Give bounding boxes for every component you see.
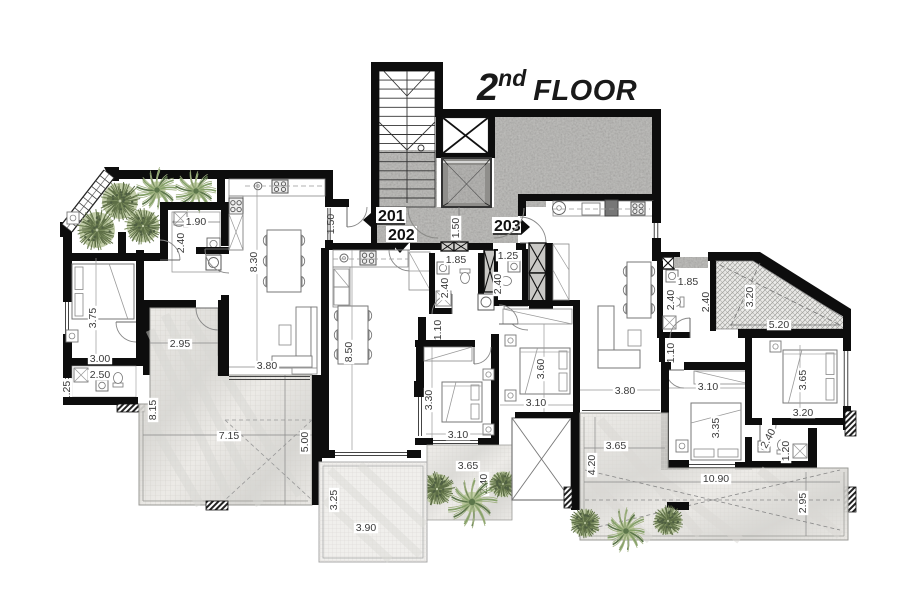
svg-text:8.15: 8.15 [147, 400, 159, 421]
svg-text:203: 203 [494, 218, 521, 235]
svg-text:1.20: 1.20 [780, 441, 792, 462]
svg-text:1.50: 1.50 [450, 218, 462, 239]
svg-text:7.15: 7.15 [219, 430, 240, 442]
svg-text:10.90: 10.90 [703, 473, 729, 485]
svg-text:201: 201 [378, 208, 405, 225]
svg-text:3.80: 3.80 [615, 385, 636, 397]
svg-text:3.20: 3.20 [793, 407, 814, 419]
svg-text:1.10: 1.10 [665, 343, 677, 364]
svg-text:2.50: 2.50 [90, 369, 111, 381]
svg-text:3.65: 3.65 [797, 370, 809, 391]
svg-text:3.65: 3.65 [458, 460, 479, 472]
svg-text:1.90: 1.90 [186, 216, 207, 228]
svg-text:8.30: 8.30 [248, 252, 260, 273]
svg-text:5.20: 5.20 [769, 319, 790, 331]
svg-text:3.35: 3.35 [710, 418, 722, 439]
svg-text:2.40: 2.40 [665, 290, 677, 311]
svg-text:2.95: 2.95 [170, 338, 191, 350]
svg-text:1.10: 1.10 [432, 320, 444, 341]
svg-text:3.30: 3.30 [423, 390, 435, 411]
svg-text:2.40: 2.40 [492, 274, 504, 295]
svg-text:5.00: 5.00 [299, 432, 311, 453]
svg-text:3.90: 3.90 [356, 522, 377, 534]
svg-text:2.95: 2.95 [797, 493, 809, 514]
svg-text:8.50: 8.50 [343, 342, 355, 363]
svg-text:1.50: 1.50 [325, 214, 337, 235]
svg-text:2.40: 2.40 [175, 233, 187, 254]
svg-text:2.40: 2.40 [439, 278, 451, 299]
svg-text:3.20: 3.20 [744, 287, 756, 308]
svg-text:3.10: 3.10 [698, 381, 719, 393]
svg-text:4.20: 4.20 [586, 455, 598, 476]
svg-text:3.25: 3.25 [328, 490, 340, 511]
svg-text:3.00: 3.00 [90, 353, 111, 365]
svg-text:3.75: 3.75 [87, 308, 99, 329]
svg-text:202: 202 [388, 227, 415, 244]
svg-text:1.85: 1.85 [678, 276, 699, 288]
svg-text:3.80: 3.80 [257, 360, 278, 372]
svg-text:3.10: 3.10 [448, 429, 469, 441]
svg-text:1.85: 1.85 [446, 254, 467, 266]
svg-text:3.65: 3.65 [606, 440, 627, 452]
svg-text:3.10: 3.10 [526, 397, 547, 409]
svg-text:3.60: 3.60 [535, 359, 547, 380]
svg-text:1.25: 1.25 [498, 250, 519, 262]
